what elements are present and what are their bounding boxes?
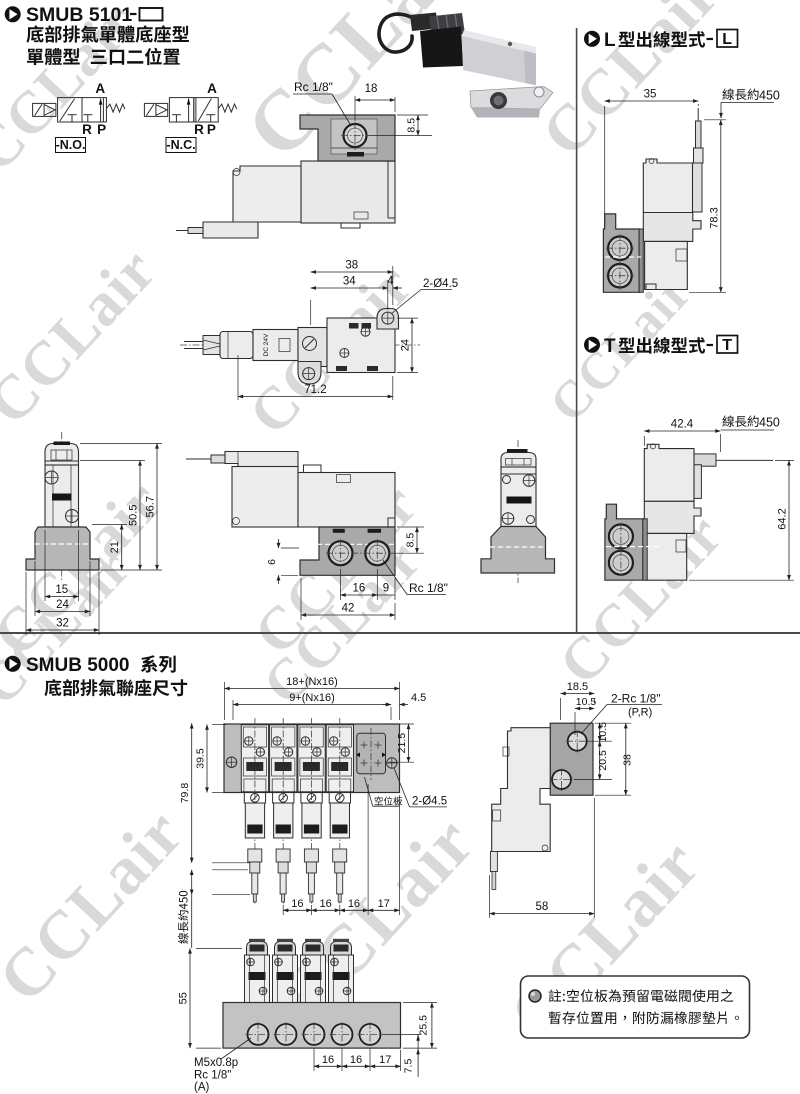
svg-text:R: R — [194, 122, 204, 137]
svg-text:78.3: 78.3 — [708, 207, 720, 228]
svg-text:Rc 1/8": Rc 1/8" — [294, 80, 333, 94]
svg-text:10.5: 10.5 — [576, 696, 597, 708]
svg-text:-N.C.: -N.C. — [166, 138, 195, 152]
svg-text:450: 450 — [759, 416, 780, 430]
svg-text:16: 16 — [348, 898, 360, 910]
svg-text:-N.O.: -N.O. — [56, 138, 86, 152]
svg-text:2-Ø4.5: 2-Ø4.5 — [423, 278, 458, 290]
svg-text:71.2: 71.2 — [304, 384, 326, 396]
svg-text:6: 6 — [266, 559, 278, 565]
svg-text:58: 58 — [536, 901, 549, 913]
svg-text:24: 24 — [56, 599, 69, 611]
svg-text:Rc 1/8": Rc 1/8" — [194, 1070, 231, 1082]
svg-text:64.2: 64.2 — [777, 508, 789, 529]
svg-text:18: 18 — [365, 83, 378, 95]
svg-text:(A): (A) — [194, 1082, 210, 1094]
svg-text:34: 34 — [343, 276, 356, 288]
svg-text:56.7: 56.7 — [145, 496, 157, 517]
svg-text:9: 9 — [383, 583, 389, 595]
svg-text:42.4: 42.4 — [671, 419, 694, 431]
svg-text:DC 24V: DC 24V — [263, 333, 270, 356]
svg-text:15: 15 — [55, 584, 68, 596]
svg-text:50.5: 50.5 — [128, 505, 140, 526]
svg-text:17: 17 — [378, 898, 390, 910]
svg-text:450: 450 — [759, 89, 780, 103]
svg-text:T: T — [604, 336, 616, 357]
svg-text:9+(Nx16): 9+(Nx16) — [289, 692, 335, 704]
svg-text:25.5: 25.5 — [417, 1015, 429, 1036]
svg-text:4.5: 4.5 — [411, 692, 426, 704]
svg-text:42: 42 — [342, 603, 355, 615]
svg-text:55: 55 — [178, 992, 190, 1004]
svg-text:SMUB 5101: SMUB 5101 — [26, 4, 132, 26]
svg-text:18+(Nx16): 18+(Nx16) — [286, 676, 338, 688]
svg-text:4: 4 — [387, 276, 394, 288]
svg-text:21.5: 21.5 — [396, 733, 408, 754]
svg-text:79.8: 79.8 — [179, 783, 191, 804]
svg-text:38: 38 — [622, 754, 634, 766]
svg-text:10.5: 10.5 — [597, 722, 609, 743]
svg-text:32: 32 — [56, 618, 69, 630]
svg-text:SMUB 5000: SMUB 5000 — [26, 655, 130, 676]
svg-text:16: 16 — [350, 1054, 362, 1066]
svg-text:R: R — [82, 122, 92, 137]
svg-text:16: 16 — [291, 898, 303, 910]
svg-text:16: 16 — [353, 583, 366, 595]
svg-text:Rc 1/8": Rc 1/8" — [409, 581, 448, 595]
svg-text:M5x0.8p: M5x0.8p — [194, 1057, 238, 1069]
svg-text:A: A — [95, 81, 105, 96]
svg-text:7.5: 7.5 — [403, 1059, 415, 1074]
svg-text:A: A — [207, 81, 217, 96]
svg-text:35: 35 — [644, 89, 657, 101]
svg-text:16: 16 — [320, 898, 332, 910]
svg-text:2-Ø4.5: 2-Ø4.5 — [412, 796, 447, 808]
svg-text:39.5: 39.5 — [195, 748, 207, 769]
svg-text:18.5: 18.5 — [567, 681, 588, 693]
svg-text:L: L — [604, 30, 616, 51]
svg-text:21: 21 — [109, 541, 121, 553]
svg-text:17: 17 — [379, 1054, 391, 1066]
svg-text:T: T — [722, 337, 732, 354]
svg-text:8.5: 8.5 — [405, 533, 417, 548]
svg-text:2-Rc 1/8": 2-Rc 1/8" — [611, 692, 661, 706]
svg-text:8.5: 8.5 — [406, 118, 418, 133]
svg-text:(P,R): (P,R) — [628, 707, 652, 719]
svg-text:16: 16 — [322, 1054, 334, 1066]
svg-text:20.5: 20.5 — [597, 750, 609, 771]
svg-text:P: P — [97, 122, 106, 137]
svg-text:38: 38 — [345, 260, 358, 272]
svg-text:P: P — [207, 122, 216, 137]
svg-text:L: L — [722, 31, 732, 48]
svg-text:24: 24 — [400, 339, 412, 351]
